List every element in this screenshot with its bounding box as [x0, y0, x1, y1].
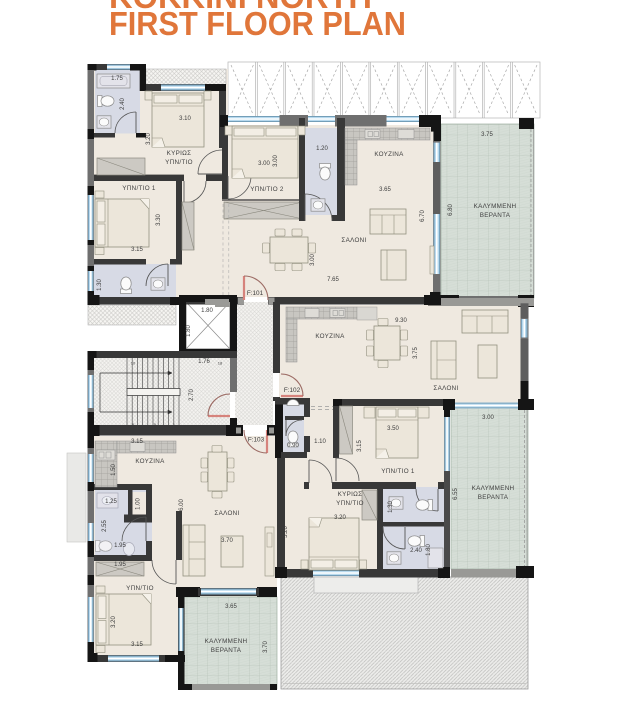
svg-text:ΚΟΥΖΙΝΑ: ΚΟΥΖΙΝΑ — [315, 333, 345, 340]
svg-text:6.80: 6.80 — [448, 204, 454, 216]
svg-text:1.50: 1.50 — [111, 464, 117, 476]
svg-text:ΚΑΛΥΜΜΕΝΗ: ΚΑΛΥΜΜΕΝΗ — [205, 638, 248, 645]
svg-text:2.40: 2.40 — [410, 548, 422, 554]
svg-text:ΥΠΝ/ΤΙΟ 2: ΥΠΝ/ΤΙΟ 2 — [250, 186, 284, 193]
svg-text:ΚΟΥΖΙΝΑ: ΚΟΥΖΙΝΑ — [374, 151, 404, 158]
svg-text:F:101: F:101 — [247, 290, 264, 297]
svg-text:3.20: 3.20 — [111, 616, 117, 628]
svg-text:3.75: 3.75 — [413, 347, 419, 359]
svg-text:3.70: 3.70 — [263, 641, 269, 653]
svg-text:0.90: 0.90 — [287, 443, 299, 449]
svg-text:ΚΟΥΖΙΝΑ: ΚΟΥΖΙΝΑ — [135, 458, 165, 465]
svg-text:ΚΑΛΥΜΜΕΝΗ: ΚΑΛΥΜΜΕΝΗ — [472, 485, 515, 492]
svg-text:ΚΑΛΥΜΜΕΝΗ: ΚΑΛΥΜΜΕΝΗ — [474, 203, 517, 210]
svg-text:ΥΠΝ/ΤΙΟ: ΥΠΝ/ΤΙΟ — [165, 159, 193, 166]
svg-text:3.20: 3.20 — [283, 526, 289, 538]
svg-text:6.00: 6.00 — [179, 499, 185, 511]
svg-text:3.00: 3.00 — [273, 155, 279, 167]
svg-text:1.80: 1.80 — [426, 544, 432, 556]
svg-text:3.00: 3.00 — [482, 415, 494, 421]
svg-text:3.30: 3.30 — [156, 214, 162, 226]
svg-text:ΥΠΝ/ΤΙΟ 1: ΥΠΝ/ΤΙΟ 1 — [122, 185, 156, 192]
svg-text:3.15: 3.15 — [357, 440, 363, 452]
svg-text:3.20: 3.20 — [334, 515, 346, 521]
svg-text:ΥΠΝ/ΤΙΟ 1: ΥΠΝ/ΤΙΟ 1 — [381, 468, 415, 475]
svg-text:3.10: 3.10 — [179, 116, 191, 122]
svg-text:7.65: 7.65 — [327, 277, 339, 283]
svg-text:ΣΑΛΟΝΙ: ΣΑΛΟΝΙ — [341, 237, 366, 244]
svg-text:1.80: 1.80 — [201, 308, 213, 314]
svg-text:18: 18 — [218, 361, 223, 366]
svg-text:ΥΠΝ/ΤΙΟ: ΥΠΝ/ΤΙΟ — [126, 585, 154, 592]
svg-text:1.20: 1.20 — [316, 146, 328, 152]
svg-text:3.50: 3.50 — [387, 426, 399, 432]
svg-text:6.70: 6.70 — [420, 210, 426, 222]
svg-text:1.95: 1.95 — [114, 562, 126, 568]
svg-text:3.75: 3.75 — [481, 132, 493, 138]
svg-text:3.00: 3.00 — [258, 161, 270, 167]
svg-text:3.20: 3.20 — [146, 133, 152, 145]
svg-text:1.75: 1.75 — [111, 76, 123, 82]
svg-text:3.00: 3.00 — [310, 254, 316, 266]
svg-text:3.70: 3.70 — [221, 538, 233, 544]
svg-text:3.65: 3.65 — [379, 187, 391, 193]
svg-text:ΒΕΡΑΝΤΑ: ΒΕΡΑΝΤΑ — [211, 647, 242, 654]
svg-text:1.30: 1.30 — [97, 279, 103, 291]
svg-text:3.15: 3.15 — [131, 439, 143, 445]
svg-text:6.55: 6.55 — [453, 488, 459, 500]
svg-text:1.00: 1.00 — [136, 498, 142, 510]
svg-text:2.55: 2.55 — [102, 520, 108, 532]
svg-text:1.76: 1.76 — [198, 359, 210, 365]
svg-text:ΒΕΡΑΝΤΑ: ΒΕΡΑΝΤΑ — [478, 494, 509, 501]
svg-text:ΣΑΛΟΝΙ: ΣΑΛΟΝΙ — [433, 385, 458, 392]
svg-text:10: 10 — [131, 361, 136, 366]
svg-text:ΚΥΡΙΩΣ: ΚΥΡΙΩΣ — [338, 491, 363, 498]
svg-text:2.40: 2.40 — [120, 98, 126, 110]
svg-text:2.70: 2.70 — [189, 389, 195, 401]
svg-text:9.30: 9.30 — [395, 318, 407, 324]
svg-text:1.80: 1.80 — [186, 325, 192, 337]
svg-text:ΒΕΡΑΝΤΑ: ΒΕΡΑΝΤΑ — [480, 212, 511, 219]
svg-text:ΥΠΝ/ΤΙΟ: ΥΠΝ/ΤΙΟ — [336, 500, 364, 507]
svg-text:1.95: 1.95 — [114, 543, 126, 549]
svg-text:1.10: 1.10 — [314, 439, 326, 445]
svg-text:ΣΑΛΟΝΙ: ΣΑΛΟΝΙ — [214, 510, 239, 517]
svg-text:1.25: 1.25 — [105, 499, 117, 505]
svg-text:3.65: 3.65 — [225, 604, 237, 610]
svg-text:3.15: 3.15 — [131, 247, 143, 253]
svg-text:FIRST FLOOR PLAN: FIRST FLOOR PLAN — [109, 5, 406, 42]
svg-text:F:102: F:102 — [284, 387, 301, 394]
svg-text:ΚΥΡΙΩΣ: ΚΥΡΙΩΣ — [167, 150, 192, 157]
svg-text:F:103: F:103 — [248, 437, 265, 444]
svg-text:3.15: 3.15 — [131, 642, 143, 648]
svg-text:1.30: 1.30 — [388, 501, 394, 513]
